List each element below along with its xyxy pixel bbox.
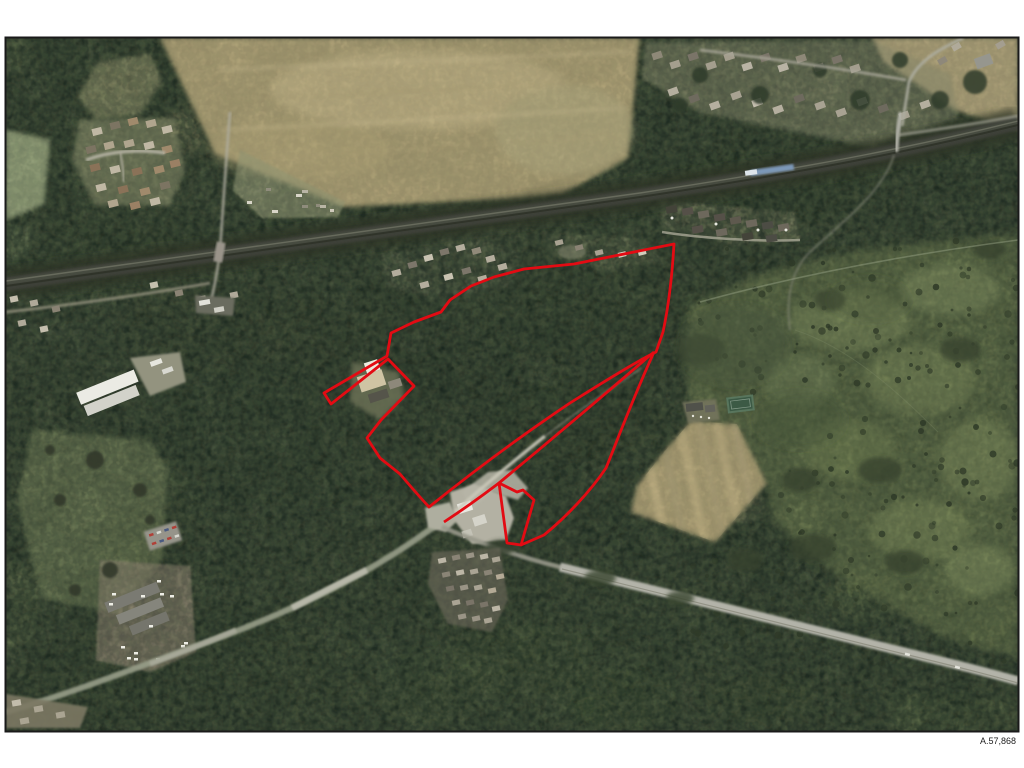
svg-text:A.57,868: A.57,868	[980, 736, 1016, 746]
